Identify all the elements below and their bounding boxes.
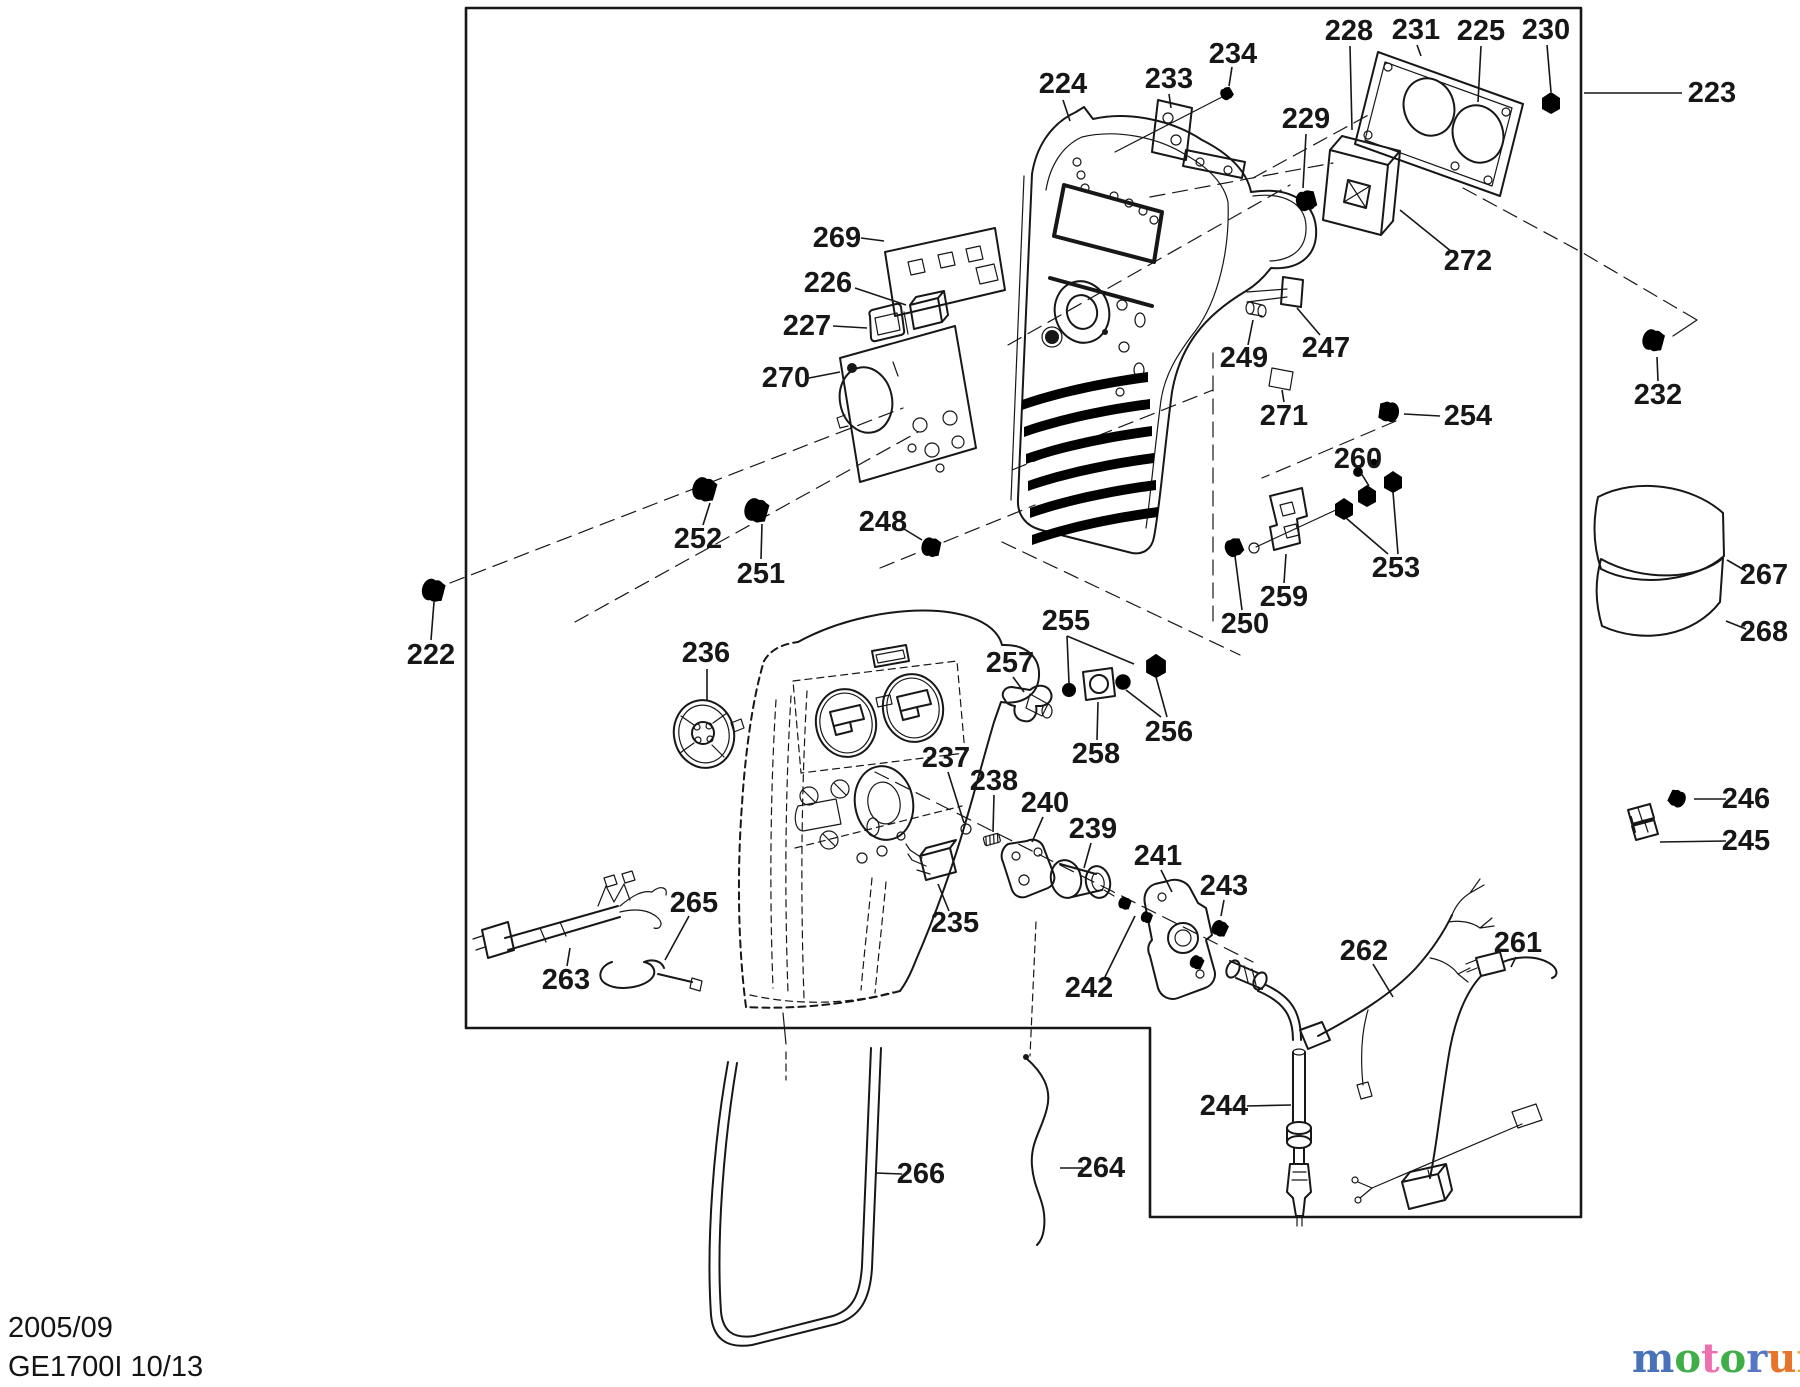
screw-232: [1640, 327, 1682, 357]
footer-model: GE1700I 10/13: [8, 1351, 203, 1383]
leader-line-251: [761, 524, 762, 559]
part-label-252: 252: [674, 523, 722, 555]
seal-strip-266: [710, 1048, 881, 1346]
harness-262: [1300, 879, 1494, 1099]
leader-line-247: [1297, 308, 1320, 335]
wire-264: [1023, 1054, 1048, 1245]
part-label-234: 234: [1209, 38, 1257, 70]
leader-line-250: [1235, 556, 1242, 610]
part-label-269: 269: [813, 222, 861, 254]
part-label-260: 260: [1334, 443, 1382, 475]
leader-line-253: [1346, 518, 1388, 554]
part-label-265: 265: [670, 887, 718, 919]
mount-bracket-233: [1152, 100, 1245, 178]
leader-line-253-1: [1393, 492, 1398, 554]
leader-line-256: [1126, 690, 1161, 717]
part-label-259: 259: [1260, 581, 1308, 613]
part-label-268: 268: [1740, 616, 1788, 648]
screw-242a: [1117, 895, 1142, 914]
leader-line-229: [1303, 134, 1306, 188]
gasket-plate: [1355, 52, 1523, 196]
part-label-239: 239: [1069, 813, 1117, 845]
harness-263: [473, 871, 666, 958]
part-label-227: 227: [783, 310, 831, 342]
part-label-223: 223: [1688, 77, 1736, 109]
leader-line-242: [1104, 916, 1135, 979]
part-label-272: 272: [1444, 245, 1492, 277]
diagram-line-art: [419, 8, 1724, 1346]
leader-line-269: [861, 238, 884, 241]
exploded-parts-diagram: 2222232242252262272282292302312322332342…: [0, 0, 1800, 1387]
part-label-242: 242: [1065, 972, 1113, 1004]
part-label-225: 225: [1457, 15, 1505, 47]
part-label-240: 240: [1021, 787, 1069, 819]
leader-line-226: [855, 288, 906, 305]
part-label-255: 255: [1042, 605, 1090, 637]
leader-line-270: [809, 372, 840, 378]
part-label-262: 262: [1340, 935, 1388, 967]
screw-246: [1654, 782, 1688, 810]
part-label-248: 248: [859, 506, 907, 538]
leader-line-233: [1169, 94, 1171, 108]
part-label-238: 238: [970, 765, 1018, 797]
part-label-267: 267: [1740, 559, 1788, 591]
part-label-257: 257: [986, 647, 1034, 679]
control-box-272: [1323, 136, 1400, 235]
part-label-233: 233: [1145, 63, 1193, 95]
leader-line-243: [1221, 900, 1224, 916]
leader-line-230: [1547, 45, 1551, 92]
clip-245: [1628, 804, 1658, 840]
leader-line-252: [703, 503, 710, 525]
screw-254: [1362, 398, 1400, 423]
screw-222: [419, 577, 463, 609]
footer-date: 2005/09: [8, 1312, 113, 1344]
part-label-228: 228: [1325, 15, 1373, 47]
leader-line-232: [1657, 357, 1658, 381]
harness-261: [1352, 952, 1557, 1209]
knob-251: [742, 496, 789, 530]
pads-267-268: [1595, 486, 1724, 636]
leader-line-228: [1350, 46, 1352, 130]
part-label-254: 254: [1444, 400, 1492, 432]
part-label-229: 229: [1282, 103, 1330, 135]
leader-line-237: [948, 772, 964, 823]
leader-line-222: [431, 602, 434, 640]
leader-line-262: [1373, 964, 1393, 997]
part-label-235: 235: [931, 907, 979, 939]
part-label-264: 264: [1077, 1152, 1125, 1184]
part-label-258: 258: [1072, 738, 1120, 770]
leader-line-244: [1247, 1105, 1291, 1106]
part-label-261: 261: [1494, 927, 1542, 959]
leader-line-227: [833, 326, 867, 328]
part-label-230: 230: [1522, 14, 1570, 46]
screw-242b: [1139, 910, 1162, 927]
leader-line-254: [1404, 414, 1440, 416]
screw-250: [1222, 531, 1258, 560]
leader-line-239: [1084, 843, 1091, 868]
control-plates: [834, 228, 1005, 482]
screw-248: [920, 536, 957, 561]
nut-230: [1542, 92, 1560, 114]
part-label-249: 249: [1220, 342, 1268, 374]
leader-line-225: [1478, 46, 1481, 102]
part-label-226: 226: [804, 267, 852, 299]
leader-line-258: [1097, 702, 1098, 740]
part-label-237: 237: [922, 742, 970, 774]
part-label-222: 222: [407, 639, 455, 671]
screw-234: [1218, 81, 1243, 102]
leader-line-259: [1284, 554, 1286, 583]
leader-line-255: [1067, 636, 1069, 683]
part-label-245: 245: [1722, 825, 1770, 857]
part-label-253: 253: [1372, 552, 1420, 584]
part-label-251: 251: [737, 558, 785, 590]
part-label-236: 236: [682, 637, 730, 669]
leader-line-240: [1032, 817, 1043, 842]
part-label-247: 247: [1302, 332, 1350, 364]
leader-line-265: [665, 916, 689, 960]
part-label-270: 270: [762, 362, 810, 394]
parts-diagram-page: 2222232242252262272282292302312322332342…: [0, 0, 1800, 1387]
screw-243: [1209, 918, 1241, 944]
part-label-241: 241: [1134, 840, 1182, 872]
part-label-231: 231: [1392, 14, 1440, 46]
part-label-224: 224: [1039, 68, 1087, 100]
front-panel: [1011, 107, 1316, 553]
leader-line-257: [1013, 677, 1024, 692]
part-label-244: 244: [1200, 1090, 1248, 1122]
dial-knob-236: [668, 695, 744, 774]
screw-229: [1294, 184, 1334, 212]
part-label-263: 263: [542, 964, 590, 996]
leader-line-245: [1660, 841, 1726, 842]
part-label-271: 271: [1260, 400, 1308, 432]
leader-line-238: [993, 795, 994, 832]
leader-line-255-1: [1067, 636, 1134, 664]
cable-tie-265: [600, 960, 702, 991]
part-label-266: 266: [897, 1158, 945, 1190]
part-label-246: 246: [1722, 783, 1770, 815]
knob-252: [690, 475, 737, 509]
leader-line-231: [1417, 45, 1421, 56]
motoruf-logo: motoruf’.de: [1632, 1335, 1800, 1382]
part-label-232: 232: [1634, 379, 1682, 411]
leader-line-256-1: [1156, 677, 1167, 717]
part-label-243: 243: [1200, 870, 1248, 902]
part-label-256: 256: [1145, 716, 1193, 748]
